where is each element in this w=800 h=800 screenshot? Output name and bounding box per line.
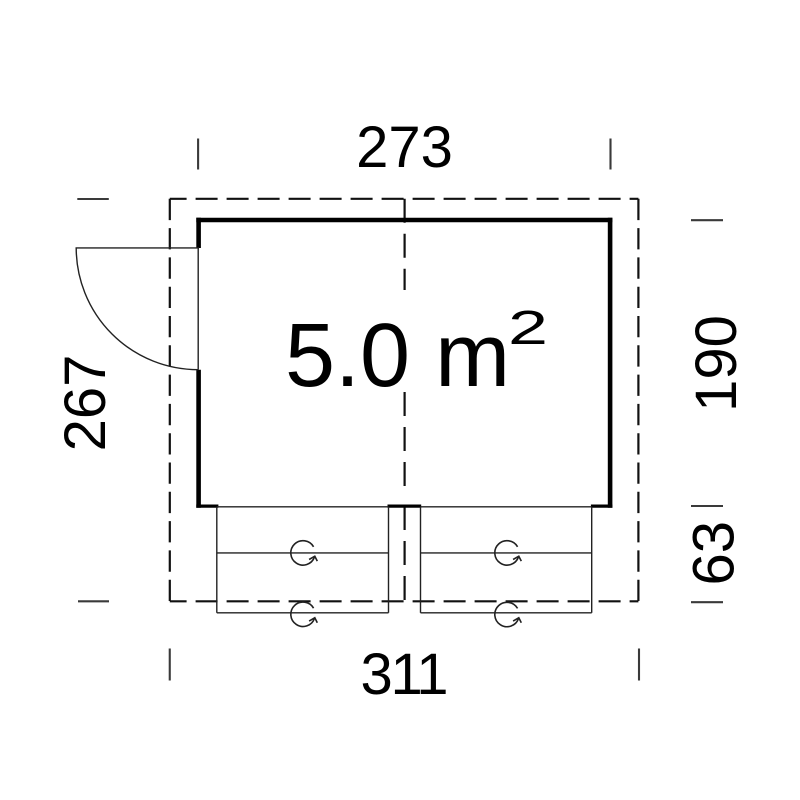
svg-text:5.0 m: 5.0 m xyxy=(285,306,510,406)
svg-text:190: 190 xyxy=(684,315,749,412)
svg-text:273: 273 xyxy=(356,115,453,180)
svg-text:267: 267 xyxy=(53,355,118,452)
svg-text:2: 2 xyxy=(508,302,548,355)
svg-text:311: 311 xyxy=(361,642,449,707)
svg-text:63: 63 xyxy=(682,521,747,586)
